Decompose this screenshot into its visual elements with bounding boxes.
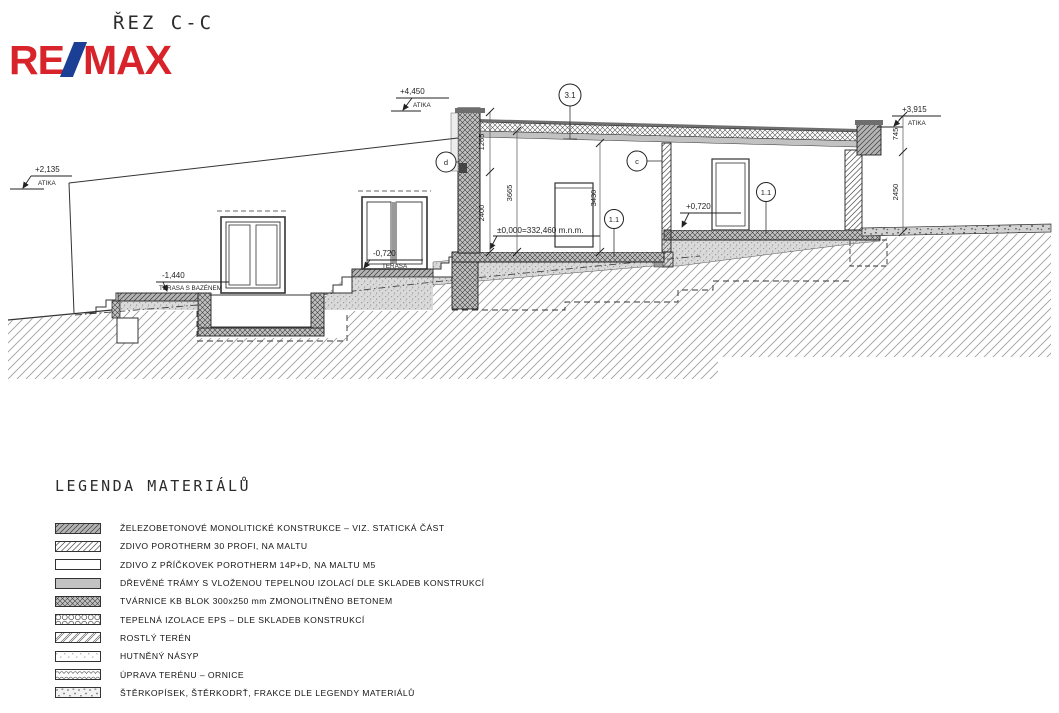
level-label: ATIKA: [413, 102, 432, 109]
dim-attic-right: 745: [891, 128, 900, 141]
wall-left: [458, 108, 480, 253]
level-value: -1,440: [162, 271, 185, 280]
footing-left: [117, 318, 138, 343]
legend-title: LEGENDA MATERIÁLŮ: [55, 477, 485, 495]
parapet-right: [857, 124, 881, 155]
callout-label: d: [444, 158, 448, 167]
level-label: ATIKA: [38, 180, 57, 187]
dim-room-left: 3665: [505, 185, 514, 202]
dim-parapet: 1265: [477, 134, 486, 151]
level-value: -0,720: [373, 249, 396, 258]
pool-floor: [198, 328, 324, 336]
legend-item-partition: ZDIVO Z PŘÍČKOVEK POROTHERM 14P+D, NA MA…: [55, 556, 485, 574]
dim-door: 3430: [589, 190, 598, 207]
dim-wall-right: 2450: [891, 184, 900, 201]
pool-wall-left: [198, 293, 211, 333]
callout-label: c: [635, 157, 639, 166]
wall-right: [845, 150, 862, 230]
blueprint-sheet: { "page": { "title": "ŘEZ C-C" }, "logo"…: [0, 0, 1059, 713]
legend-label: DŘEVĚNÉ TRÁMY S VLOŽENOU TEPELNOU IZOLAC…: [120, 578, 485, 588]
legend-items: ŽELEZOBETONOVÉ MONOLITICKÉ KONSTRUKCE – …: [55, 519, 485, 702]
materials-legend: LEGENDA MATERIÁLŮ ŽELEZOBETONOVÉ MONOLIT…: [55, 477, 485, 702]
pool-wall-right: [311, 293, 324, 333]
legend-item-gravel: ŠTĚRKOPÍSEK, ŠTĚRKODRŤ, FRAKCE DLE LEGEN…: [55, 684, 485, 702]
legend-item-native-soil: ROSTLÝ TERÉN: [55, 629, 485, 647]
window-elevation-1: [217, 211, 289, 293]
level-label: TERASA S BAZÉNEM: [159, 283, 222, 292]
legend-item-topsoil: ÚPRAVA TERÉNU – ORNICE: [55, 665, 485, 683]
level-label: TERASA: [382, 263, 408, 270]
door-right-room: [712, 159, 749, 230]
porotherm-swatch: [55, 541, 101, 552]
level-value: +2,135: [35, 165, 60, 174]
callout-label: 1.1: [609, 215, 619, 224]
kb-block-swatch: [55, 596, 101, 607]
legend-label: ÚPRAVA TERÉNU – ORNICE: [120, 670, 244, 680]
legend-item-kb-block: TVÁRNICE KB BLOK 300x250 mm ZMONOLITNĚNO…: [55, 592, 485, 610]
legend-item-reinforced-concrete: ŽELEZOBETONOVÉ MONOLITICKÉ KONSTRUKCE – …: [55, 519, 485, 537]
level-atika-main: +4,450 ATIKA: [391, 87, 449, 111]
section-drawing: +2,135 ATIKA +4,450 ATIKA +3,915 ATIKA -…: [0, 0, 1059, 470]
legend-item-compacted-fill: HUTNĚNÝ NÁSYP: [55, 647, 485, 665]
dim-glazing: 2400: [477, 205, 486, 222]
callout-label: 3.1: [564, 91, 576, 100]
level-atika-left: +2,135 ATIKA: [10, 165, 72, 189]
level-terrace-pool: -1,440 TERASA S BAZÉNEM: [156, 271, 229, 292]
legend-item-porotherm: ZDIVO POROTHERM 30 PROFI, NA MALTU: [55, 537, 485, 555]
legend-label: HUTNĚNÝ NÁSYP: [120, 651, 199, 661]
legend-item-eps: TEPELNÁ IZOLACE EPS – DLE SKLADEB KONSTR…: [55, 610, 485, 628]
callout-label: 1.1: [761, 188, 771, 197]
level-label: ATIKA: [908, 120, 927, 127]
footing-right: [850, 240, 887, 266]
native-soil-swatch: [55, 632, 101, 643]
level-atika-right: +3,915 ATIKA: [877, 105, 941, 127]
level-value: +0,720: [686, 202, 711, 211]
topsoil-swatch: [55, 669, 101, 680]
legend-label: ZDIVO Z PŘÍČKOVEK POROTHERM 14P+D, NA MA…: [120, 560, 376, 570]
gravel-swatch: [55, 687, 101, 698]
legend-label: ŽELEZOBETONOVÉ MONOLITICKÉ KONSTRUKCE – …: [120, 523, 445, 533]
eps-swatch: [55, 614, 101, 625]
floor-slab-left: [452, 252, 664, 262]
compacted-fill-swatch: [55, 651, 101, 662]
legend-label: ŠTĚRKOPÍSEK, ŠTĚRKODRŤ, FRAKCE DLE LEGEN…: [120, 688, 415, 698]
door-left-room: [555, 183, 593, 247]
pool-steps: [324, 269, 352, 293]
legend-label: ZDIVO POROTHERM 30 PROFI, NA MALTU: [120, 541, 308, 551]
legend-item-timber: DŘEVĚNÉ TRÁMY S VLOŽENOU TEPELNOU IZOLAC…: [55, 574, 485, 592]
timber-swatch: [55, 578, 101, 589]
level-value: +4,450: [400, 87, 425, 96]
floor-slab-right: [664, 230, 880, 240]
reinforced-concrete-swatch: [55, 523, 101, 534]
partition-swatch: [55, 559, 101, 570]
legend-label: ROSTLÝ TERÉN: [120, 633, 191, 643]
legend-label: TVÁRNICE KB BLOK 300x250 mm ZMONOLITNĚNO…: [120, 596, 393, 606]
legend-label: TEPELNÁ IZOLACE EPS – DLE SKLADEB KONSTR…: [120, 615, 365, 625]
level-value: ±0,000=332,460 m.n.m.: [497, 226, 584, 235]
wall-interior: [662, 143, 671, 252]
